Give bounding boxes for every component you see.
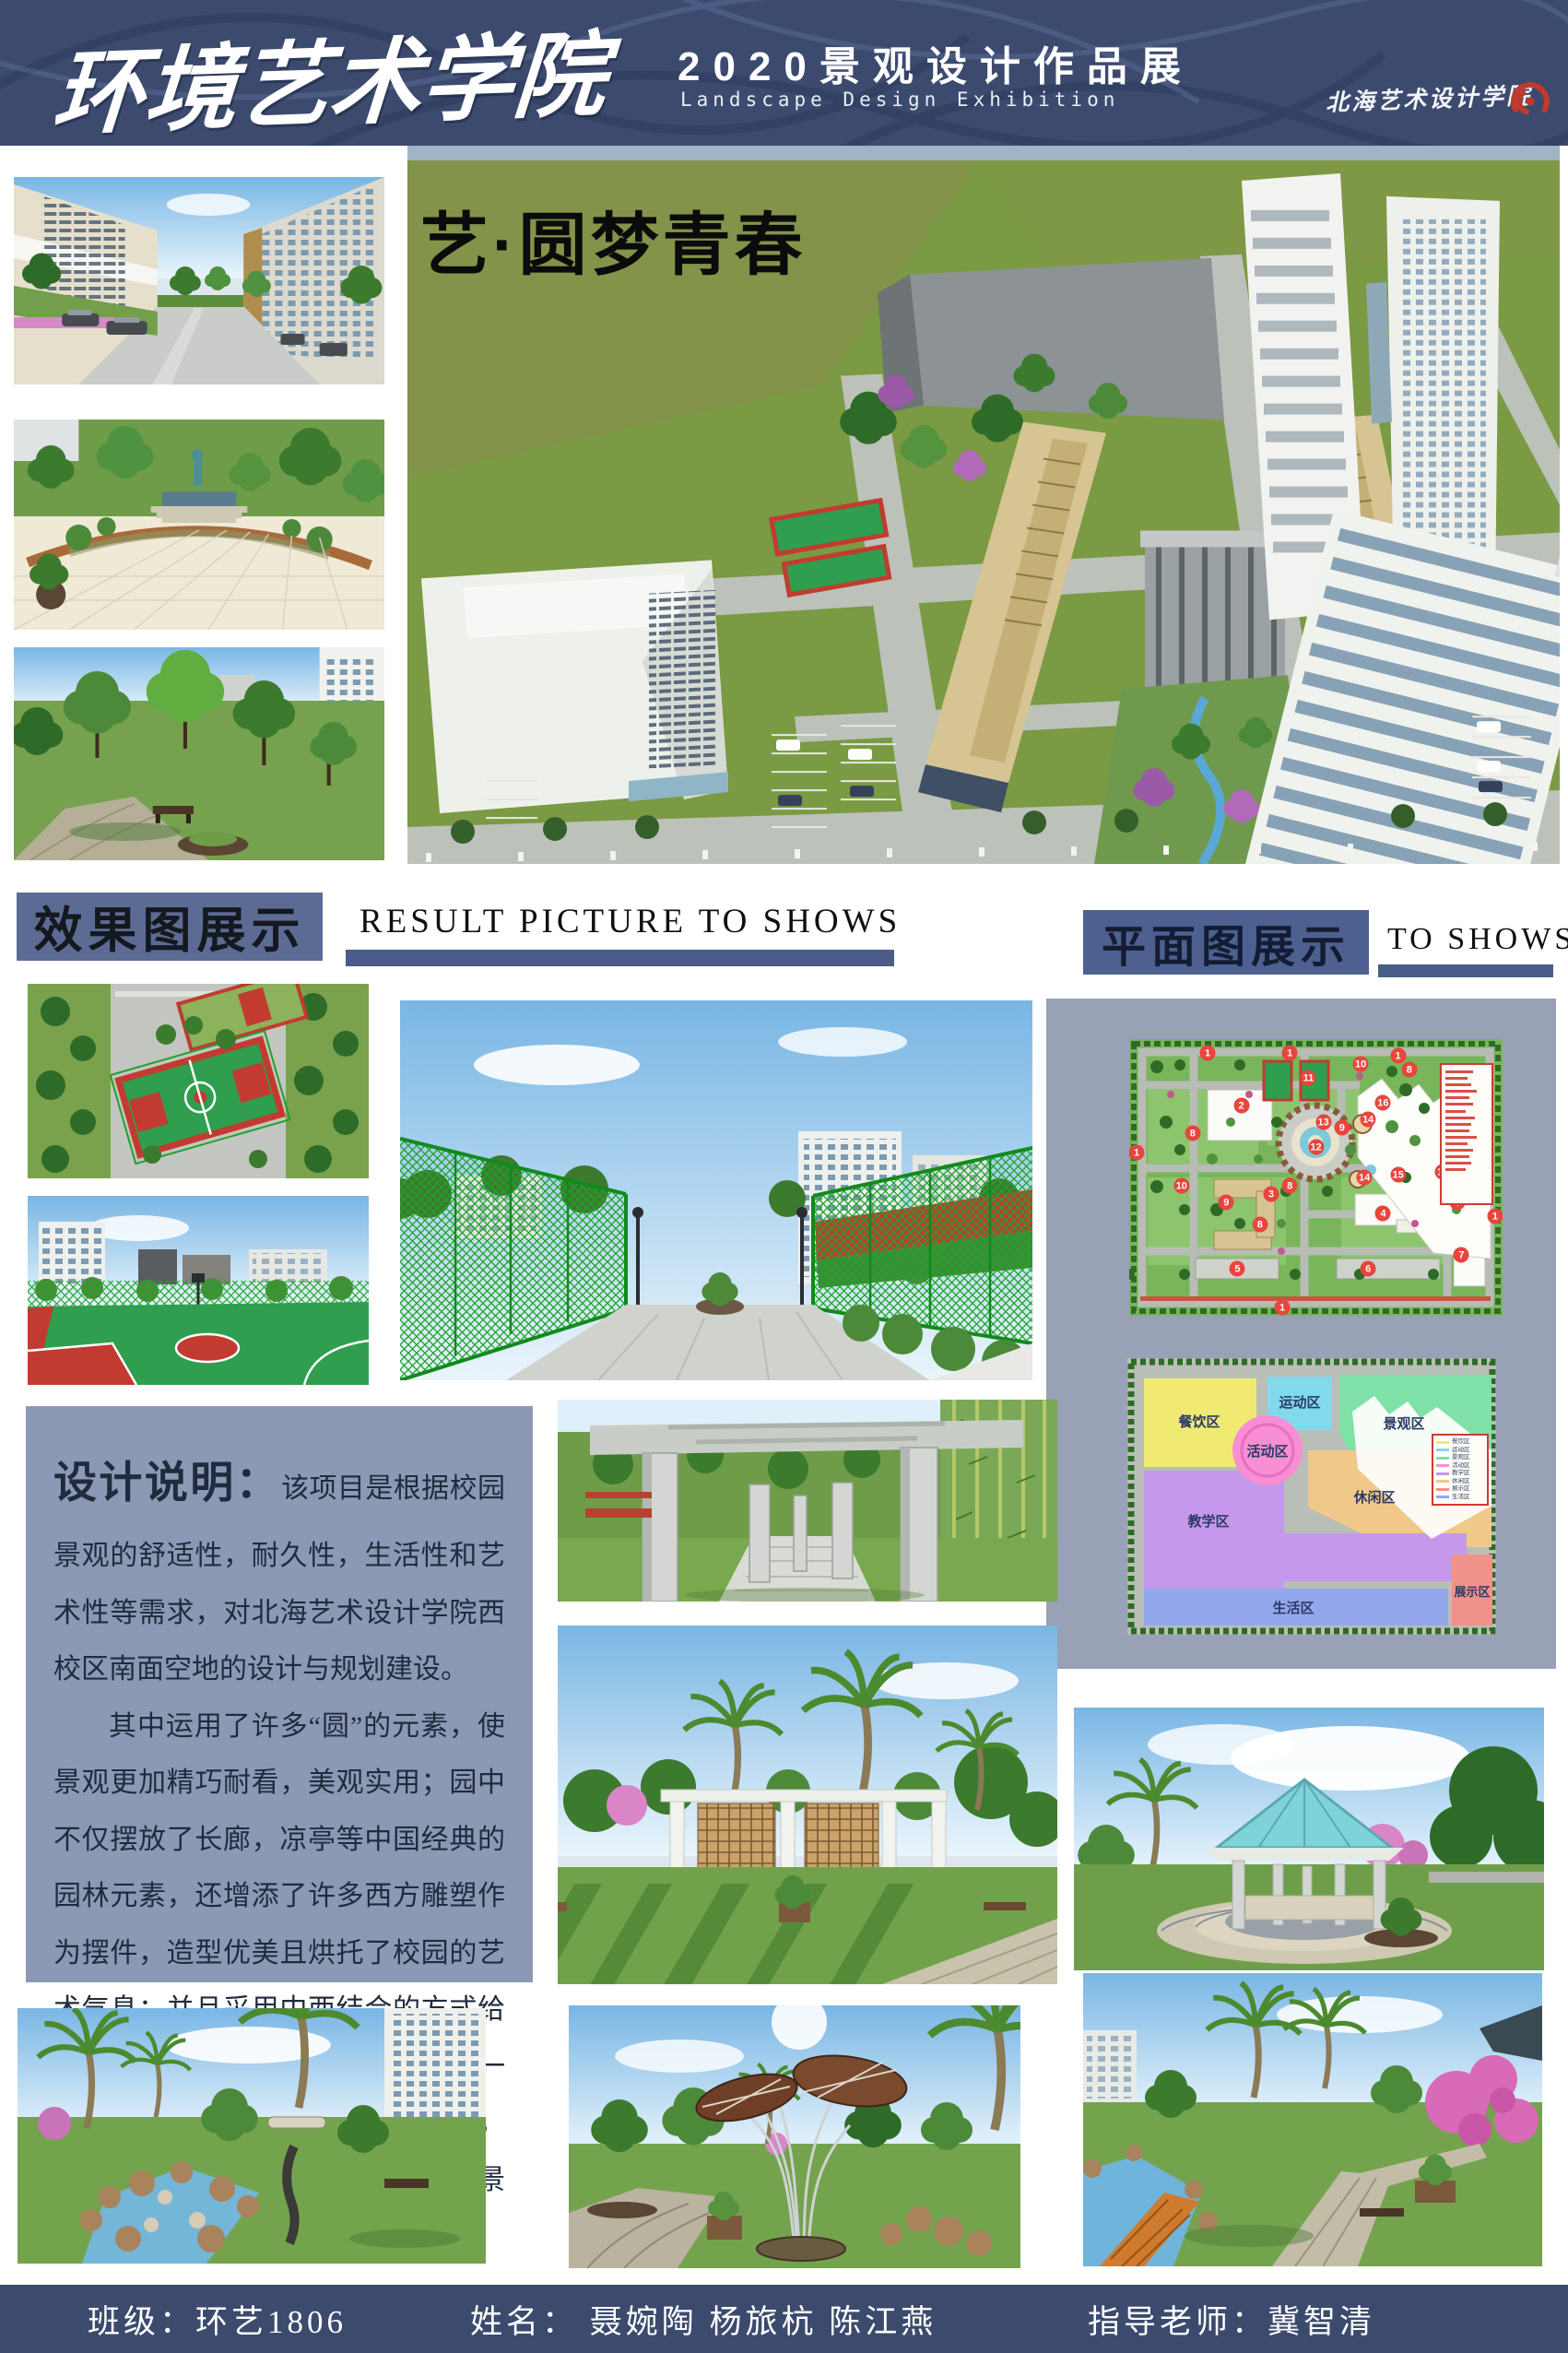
footer-names: 姓名： 聂婉陶 杨旅杭 陈江燕	[470, 2296, 937, 2343]
header-banner: 环境艺术学院 2020景观设计作品展 Landscape Design Exhi…	[0, 0, 1568, 146]
master-plan-legend-line	[1445, 1103, 1473, 1106]
exhibition-subtitle: Landscape Design Exhibition	[680, 89, 1119, 111]
results-section-title: 效果图展示	[34, 892, 306, 962]
plan-marker-1: 1	[1282, 1046, 1298, 1061]
plan-marker-13: 13	[1315, 1115, 1331, 1130]
zoning-legend-swatch	[1436, 1488, 1449, 1491]
design-description-panel: 设计说明：该项目是根据校园景观的舒适性，耐久性，生活性和艺术性等需求，对北海艺术…	[26, 1406, 533, 1982]
plan-marker-6: 6	[1361, 1261, 1376, 1277]
plan-marker-10: 10	[1173, 1178, 1189, 1194]
plan-marker-14: 14	[1361, 1112, 1376, 1128]
zoning-legend-label: 展示区	[1452, 1486, 1470, 1493]
plan-marker-10: 10	[1353, 1057, 1369, 1072]
zone-teaching-extension	[1275, 1533, 1467, 1581]
photo-basketball-court-aerial	[28, 984, 369, 1178]
master-plan-legend-line	[1445, 1155, 1469, 1158]
photo-basketball-court-ground	[28, 1196, 369, 1385]
zoning-legend-row: 教学区	[1436, 1471, 1484, 1477]
master-plan-legend-line	[1445, 1142, 1468, 1145]
zoning-legend-swatch	[1436, 1464, 1449, 1467]
plan-marker-4: 4	[1375, 1206, 1391, 1222]
plan-marker-7: 7	[1454, 1247, 1469, 1263]
zoning-legend-swatch	[1436, 1480, 1449, 1483]
master-plan-legend-line	[1445, 1136, 1477, 1139]
zoning-legend-row: 活动区	[1436, 1463, 1484, 1470]
zoning-legend-label: 运动区	[1452, 1448, 1470, 1454]
photo-fenced-walkway-render	[400, 1000, 1032, 1380]
description-title: 设计说明：	[53, 1460, 281, 1508]
zoning-legend-row: 景观区	[1436, 1455, 1484, 1461]
footer-advisor: 指导老师：冀智清	[1088, 2296, 1375, 2343]
results-section-title-box: 效果图展示	[17, 893, 323, 961]
plan-marker-11: 11	[1301, 1070, 1316, 1086]
photo-pergola-corridor-render	[558, 1400, 1057, 1602]
zoning-plan-legend: 餐饮区运动区景观区活动区教学区休闲区展示区生活区	[1432, 1434, 1489, 1506]
master-plan-legend-line	[1445, 1110, 1466, 1113]
zone-label-living: 生活区	[1272, 1600, 1314, 1616]
plan-marker-8: 8	[1185, 1126, 1200, 1141]
zone-label-landscape: 景观区	[1383, 1415, 1424, 1432]
plan-marker-1: 1	[1487, 1209, 1503, 1224]
zoning-legend-swatch	[1436, 1472, 1449, 1475]
zone-label-dining: 餐饮区	[1178, 1413, 1220, 1430]
plan-marker-14: 14	[1357, 1170, 1373, 1186]
zone-teaching	[1144, 1471, 1284, 1589]
photo-campus-street-render	[14, 177, 384, 384]
plan-marker-1: 1	[1390, 1048, 1406, 1064]
plan-marker-8: 8	[1401, 1062, 1417, 1078]
master-plan-legend-line	[1445, 1162, 1471, 1165]
results-section-subtitle: RESULT PICTURE TO SHOWS	[360, 902, 901, 941]
zoning-plan-image: 餐饮区 运动区 景观区 活动区 教学区 休闲区 展示区 生活区 餐饮区运动区景观…	[1127, 1358, 1496, 1635]
zoning-legend-row: 运动区	[1436, 1448, 1484, 1454]
zone-label-leisure: 休闲区	[1352, 1489, 1395, 1506]
zoning-legend-label: 教学区	[1452, 1471, 1470, 1477]
master-plan-legend-line	[1445, 1117, 1475, 1119]
plan-marker-1: 1	[1275, 1300, 1291, 1316]
photo-lattice-pavilion-render	[558, 1626, 1057, 1984]
master-plan-legend-line	[1445, 1077, 1468, 1080]
zoning-legend-label: 活动区	[1452, 1463, 1470, 1470]
master-plan-legend-line	[1445, 1168, 1466, 1171]
master-plan-legend-line	[1445, 1096, 1469, 1099]
plan-marker-9: 9	[1334, 1120, 1350, 1136]
master-plan-legend	[1440, 1063, 1493, 1205]
poster-page: 环境艺术学院 2020景观设计作品展 Landscape Design Exhi…	[0, 0, 1568, 2353]
zoning-legend-row: 展示区	[1436, 1486, 1484, 1493]
footer-class: 班级：环艺1806	[88, 2296, 347, 2343]
photo-statue-plaza-render	[14, 420, 384, 630]
photo-lawn-trees-render	[14, 647, 384, 860]
zone-label-sports: 运动区	[1279, 1394, 1320, 1411]
plans-section-title: 平面图展示	[1102, 910, 1350, 975]
plan-marker-1: 1	[1200, 1046, 1216, 1061]
master-plan-legend-line	[1445, 1123, 1471, 1126]
zoning-legend-label: 休闲区	[1452, 1479, 1470, 1485]
zoning-legend-swatch	[1436, 1457, 1449, 1460]
exhibition-title: 2020景观设计作品展	[678, 33, 1194, 92]
zone-label-exhibition: 展示区	[1454, 1585, 1490, 1599]
zoning-legend-row: 生活区	[1436, 1495, 1484, 1501]
zone-label-activity: 活动区	[1246, 1443, 1288, 1460]
zoning-legend-label: 生活区	[1452, 1495, 1470, 1501]
zoning-legend-row: 休闲区	[1436, 1479, 1484, 1485]
institute-logo-icon	[1503, 76, 1558, 127]
plan-marker-15: 15	[1390, 1167, 1406, 1183]
plan-marker-2: 2	[1233, 1098, 1249, 1114]
plan-marker-9: 9	[1219, 1195, 1234, 1211]
photo-stream-garden-render	[1083, 1973, 1542, 2266]
master-plan-image: 111111234567888889910101011121314141516	[1129, 1039, 1503, 1316]
zoning-legend-row: 餐饮区	[1436, 1439, 1484, 1446]
zoning-legend-swatch	[1436, 1496, 1449, 1498]
master-plan-legend-line	[1445, 1083, 1471, 1086]
master-plan-legend-line	[1445, 1129, 1469, 1132]
school-name-calligraphy: 环境艺术学院	[49, 0, 611, 153]
hero-aerial-campus-render: 艺·圆梦青春	[407, 146, 1560, 864]
photo-leaf-sculpture-render	[569, 2005, 1020, 2268]
plan-marker-8: 8	[1282, 1178, 1298, 1194]
results-section-underline	[346, 950, 894, 966]
plan-marker-8: 8	[1252, 1217, 1267, 1233]
photo-gazebo-render	[1074, 1708, 1544, 1970]
zoning-legend-label: 餐饮区	[1452, 1439, 1470, 1446]
photo-palm-stream-render	[18, 2008, 486, 2264]
footer-banner: 班级：环艺1806 姓名： 聂婉陶 杨旅杭 陈江燕 指导老师：冀智清	[0, 2285, 1568, 2353]
zoning-legend-swatch	[1436, 1448, 1449, 1451]
zoning-legend-swatch	[1436, 1441, 1449, 1444]
plan-marker-1: 1	[1129, 1145, 1145, 1161]
plans-section-underline	[1378, 964, 1553, 977]
hero-slogan-text: 艺·圆梦青春	[420, 190, 807, 289]
plans-section-subtitle: TO SHOWS	[1387, 922, 1568, 957]
plan-marker-16: 16	[1375, 1095, 1391, 1111]
master-plan-legend-line	[1445, 1149, 1473, 1152]
master-plan-legend-line	[1445, 1090, 1477, 1093]
plans-section-title-box: 平面图展示	[1083, 910, 1369, 975]
plan-marker-5: 5	[1230, 1261, 1245, 1277]
master-plan-legend-line	[1445, 1070, 1473, 1073]
plan-marker-12: 12	[1308, 1140, 1324, 1155]
zone-label-teaching: 教学区	[1186, 1513, 1229, 1530]
plan-marker-3: 3	[1263, 1187, 1279, 1202]
zoning-legend-label: 景观区	[1452, 1455, 1470, 1461]
